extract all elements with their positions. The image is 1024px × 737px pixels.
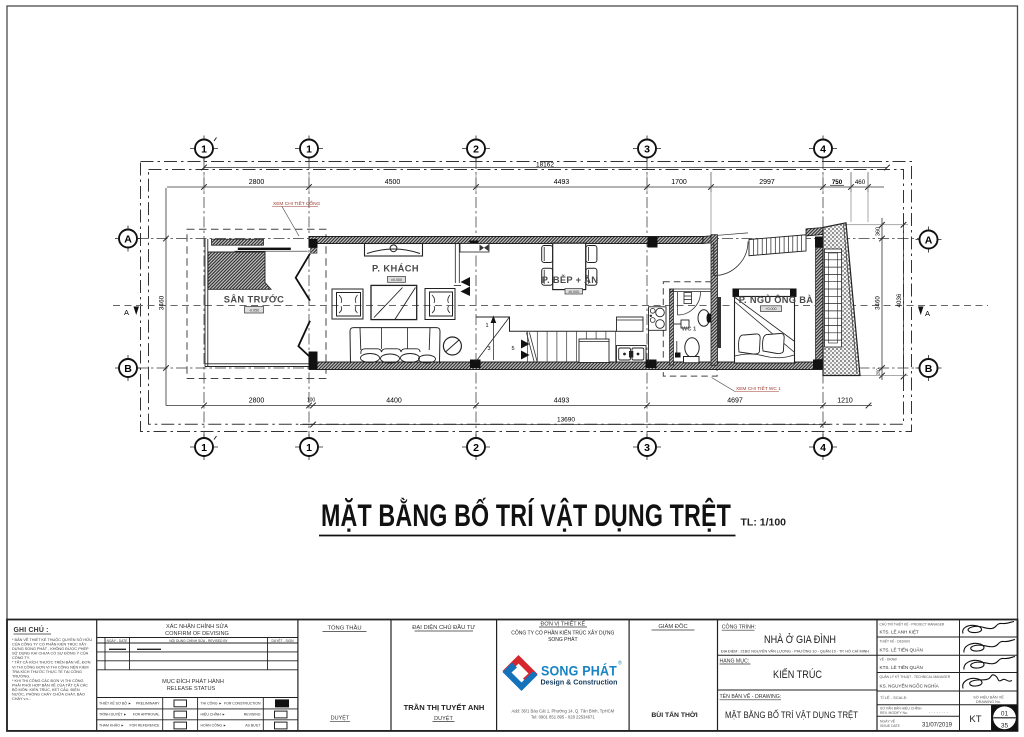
svg-text:HIỆU CHỈNH ►: HIỆU CHỈNH ► bbox=[201, 712, 226, 717]
svg-text:HOÀN CÔNG ►: HOÀN CÔNG ► bbox=[201, 723, 227, 728]
svg-text:+0.000: +0.000 bbox=[765, 307, 776, 311]
svg-text:VẼ - DRAW: VẼ - DRAW bbox=[880, 657, 898, 662]
svg-text:KTS. LÊ TIẾN QUÂN: KTS. LÊ TIẾN QUÂN bbox=[880, 646, 923, 653]
svg-text:SỬ DỤNG KHI CHƯA CÓ SỰ ĐỒNG Ý: SỬ DỤNG KHI CHƯA CÓ SỰ ĐỒNG Ý CỦA bbox=[12, 651, 89, 656]
svg-text:A: A bbox=[124, 308, 129, 317]
svg-text:CÔNG TY CỔ PHẦN KIẾN TRÚC XÂY: CÔNG TY CỔ PHẦN KIẾN TRÚC XÂY DỰNG bbox=[511, 630, 614, 637]
svg-text:4493: 4493 bbox=[554, 397, 570, 404]
svg-text:4036: 4036 bbox=[896, 293, 903, 307]
svg-text:3: 3 bbox=[487, 346, 490, 352]
svg-text:DRAWING No.: DRAWING No. bbox=[976, 700, 1001, 704]
svg-text:2800: 2800 bbox=[249, 397, 265, 404]
svg-text:TỈ LỆ - SCALE:: TỈ LỆ - SCALE: bbox=[880, 695, 907, 700]
svg-text:ĐƠN VỊ THIẾT KẾ: ĐƠN VỊ THIẾT KẾ bbox=[541, 620, 586, 627]
svg-text:B: B bbox=[925, 363, 933, 375]
svg-text:THIẾT KẾ - DESIGN: THIẾT KẾ - DESIGN bbox=[880, 639, 911, 644]
svg-text:WC 1: WC 1 bbox=[682, 327, 697, 333]
svg-text:SONG PHÁT: SONG PHÁT bbox=[541, 663, 617, 679]
svg-text:18162: 18162 bbox=[536, 161, 554, 168]
svg-text:PHẢI PHỐI HỢP BẢN VẼ CỦA TẤT C: PHẢI PHỐI HỢP BẢN VẼ CỦA TẤT CẢ CÁC bbox=[12, 683, 88, 688]
svg-text:01: 01 bbox=[1001, 710, 1009, 717]
svg-text:4: 4 bbox=[820, 143, 826, 155]
svg-text:4: 4 bbox=[820, 442, 826, 454]
svg-text:NỘI DUNG CHỈNH SỬA - REVISED B: NỘI DUNG CHỈNH SỬA - REVISED BY bbox=[169, 638, 228, 643]
svg-text:KTS. LÊ TIẾN QUÂN: KTS. LÊ TIẾN QUÂN bbox=[880, 663, 923, 670]
svg-text:THAM KHẢO ►: THAM KHẢO ► bbox=[99, 723, 124, 728]
svg-text:TRA KÍCH THƯỚC THỰC TẾ TẠI CÔN: TRA KÍCH THƯỚC THỰC TẾ TẠI CÔNG bbox=[12, 669, 82, 674]
svg-text:35: 35 bbox=[1001, 722, 1009, 729]
svg-text:Tel: 0901 851 895 - 028 225346: Tel: 0901 851 895 - 028 22534671 bbox=[531, 715, 595, 720]
svg-text:ĐỊA ĐIỂM : 21B/2 NGUYỄN VĂN L: ĐỊA ĐIỂM : 21B/2 NGUYỄN VĂN LƯỢNG - PHƯỜ… bbox=[721, 648, 869, 653]
svg-text:3: 3 bbox=[644, 143, 650, 155]
svg-text:DỰNG SONG PHÁT , KHÔNG ĐƯỢC PH: DỰNG SONG PHÁT , KHÔNG ĐƯỢC PHÉP bbox=[12, 646, 89, 651]
svg-text:MẶT BẰNG BỐ TRÍ VẬT DỤNG TRỆT: MẶT BẰNG BỐ TRÍ VẬT DỤNG TRỆT bbox=[725, 709, 858, 720]
svg-text:KT: KT bbox=[969, 714, 981, 725]
svg-text:ĐẠI DIỆN CHỦ ĐẦU TƯ: ĐẠI DIỆN CHỦ ĐẦU TƯ bbox=[412, 623, 475, 631]
svg-text:SỒ HIỆU BẢN VẼ: SỒ HIỆU BẢN VẼ bbox=[973, 694, 1004, 699]
svg-text:1: 1 bbox=[485, 323, 488, 329]
svg-text:CONFIRM OF DEVISING: CONFIRM OF DEVISING bbox=[165, 631, 229, 637]
svg-text:-0.050: -0.050 bbox=[249, 309, 259, 313]
svg-text:®: ® bbox=[618, 660, 622, 667]
svg-text:SỐ VĂN BẢN HIỆU CHỈNH: SỐ VĂN BẢN HIỆU CHỈNH bbox=[880, 706, 922, 711]
svg-text:P. KHÁCH: P. KHÁCH bbox=[372, 264, 419, 274]
svg-text:KTS. LÊ ANH KIỆT: KTS. LÊ ANH KIỆT bbox=[880, 628, 920, 635]
svg-text:THIẾT KẾ SƠ BỘ ►: THIẾT KẾ SƠ BỘ ► bbox=[99, 700, 131, 705]
svg-text:ISSUE DATE: ISSUE DATE bbox=[880, 724, 901, 728]
svg-text:2: 2 bbox=[473, 442, 479, 454]
svg-text:P. NGỦ ÔNG BÀ: P. NGỦ ÔNG BÀ bbox=[739, 294, 814, 305]
svg-text:3: 3 bbox=[644, 442, 650, 454]
svg-text:XEM CHI TIẾT WC 1: XEM CHI TIẾT WC 1 bbox=[736, 385, 781, 392]
svg-text:±0.000: ±0.000 bbox=[568, 290, 579, 294]
svg-text:KIẾN TRÚC: KIẾN TRÚC bbox=[773, 668, 822, 681]
svg-text:460: 460 bbox=[855, 179, 866, 186]
svg-text:200: 200 bbox=[876, 368, 881, 376]
svg-text:4500: 4500 bbox=[385, 179, 401, 186]
svg-text:DUYỆT: DUYỆT bbox=[331, 714, 350, 722]
svg-text:REVISING: REVISING bbox=[244, 713, 261, 717]
svg-text:CHỦ TRÌ THIẾT KẾ - PROJECT MAN: CHỦ TRÌ THIẾT KẾ - PROJECT MANAGER bbox=[880, 622, 945, 627]
svg-text:RELEASE STATUS: RELEASE STATUS bbox=[167, 686, 216, 692]
svg-text:NƯỚC, PHÒNG CHÁY CHỮA CHÁY, BÁ: NƯỚC, PHÒNG CHÁY CHỮA CHÁY, BÁO bbox=[12, 692, 85, 697]
svg-text:Design & Construction: Design & Construction bbox=[541, 678, 618, 687]
svg-text:CÔNG TY.: CÔNG TY. bbox=[12, 655, 30, 660]
svg-text:A: A bbox=[124, 233, 132, 245]
svg-text:XÁC NHẬN CHỈNH SỬA: XÁC NHẬN CHỈNH SỬA bbox=[166, 623, 228, 630]
svg-text:A: A bbox=[925, 234, 933, 246]
svg-text:TỔNG THẦU: TỔNG THẦU bbox=[327, 625, 361, 632]
svg-text:VỊ THI CÔNG ĐƠN VỊ THI CÔNG NÊ: VỊ THI CÔNG ĐƠN VỊ THI CÔNG NÊN KIỂM bbox=[12, 664, 89, 669]
svg-text:* TẤT CẢ KÍCH THƯỚC TRÊN BẢN V: * TẤT CẢ KÍCH THƯỚC TRÊN BẢN VẼ, ĐƠN bbox=[12, 660, 91, 665]
svg-text:31/07/2019: 31/07/2019 bbox=[922, 723, 953, 729]
svg-text:TRƯỜNG.: TRƯỜNG. bbox=[12, 673, 30, 678]
svg-text:4400: 4400 bbox=[386, 397, 402, 404]
svg-text:* KHI THI CÔNG CÁC ĐƠN VỊ THI: * KHI THI CÔNG CÁC ĐƠN VỊ THI CÔNG bbox=[12, 678, 84, 683]
svg-text:13690: 13690 bbox=[557, 417, 575, 424]
svg-text:360: 360 bbox=[876, 227, 882, 236]
svg-text:SONG PHÁT: SONG PHÁT bbox=[548, 636, 577, 643]
svg-text:4697: 4697 bbox=[727, 397, 743, 404]
svg-text:±0.000: ±0.000 bbox=[391, 278, 402, 282]
svg-text:FOR CONSTRUCTION: FOR CONSTRUCTION bbox=[224, 701, 261, 705]
svg-text:TÊN BẢN VẼ - DRAWING:: TÊN BẢN VẼ - DRAWING: bbox=[720, 692, 782, 700]
svg-text:1210: 1210 bbox=[837, 397, 853, 404]
svg-text:MẶT BẰNG BỐ TRÍ VẬT DỤNG TRỆT: MẶT BẰNG BỐ TRÍ VẬT DỤNG TRỆT bbox=[321, 497, 731, 533]
svg-text:100: 100 bbox=[307, 398, 316, 404]
svg-text:1700: 1700 bbox=[671, 179, 687, 186]
svg-text:DUYỆT: DUYỆT bbox=[434, 714, 453, 722]
svg-text:3460: 3460 bbox=[875, 296, 882, 310]
svg-text:3460: 3460 bbox=[159, 295, 166, 310]
svg-text:MỤC ĐÍCH PHÁT HÀNH: MỤC ĐÍCH PHÁT HÀNH bbox=[162, 678, 224, 685]
svg-text:HẠNG MỤC:: HẠNG MỤC: bbox=[720, 658, 750, 664]
svg-text:NGÀY VẼ: NGÀY VẼ bbox=[880, 718, 896, 723]
svg-text:FOR APPROVAL: FOR APPROVAL bbox=[133, 713, 160, 717]
svg-text:2: 2 bbox=[473, 143, 479, 155]
svg-text:THI CÔNG ►: THI CÔNG ► bbox=[201, 700, 223, 705]
svg-text:DUYỆT - SIGN: DUYỆT - SIGN bbox=[271, 638, 294, 643]
svg-text:* BẢN VẼ THIẾT KẾ THUỘC QUYỀN: * BẢN VẼ THIẾT KẾ THUỘC QUYỀN SỞ HỮU bbox=[12, 637, 92, 642]
svg-text:B: B bbox=[124, 363, 132, 375]
svg-text:GIÁM ĐỒC: GIÁM ĐỒC bbox=[658, 623, 687, 630]
svg-text:QUẢN LÝ KỸ THUẬT - TECHNICAL M: QUẢN LÝ KỸ THUẬT - TECHNICAL MANAGER bbox=[880, 674, 951, 679]
svg-text:2997: 2997 bbox=[759, 179, 775, 186]
svg-text:GHI CHÚ :: GHI CHÚ : bbox=[14, 625, 49, 634]
svg-text:TRÌNH DUYỆT ►: TRÌNH DUYỆT ► bbox=[99, 712, 127, 717]
svg-text:KS. NGUYỄN NGỐC NGHĨA: KS. NGUYỄN NGỐC NGHĨA bbox=[880, 683, 940, 689]
svg-text:1: 1 bbox=[306, 442, 312, 454]
svg-text:XEM CHI TIẾT CỔNG: XEM CHI TIẾT CỔNG bbox=[273, 200, 321, 207]
svg-text:SÂN TRƯỚC: SÂN TRƯỚC bbox=[224, 294, 285, 305]
svg-text:A: A bbox=[925, 309, 930, 318]
svg-text:4493: 4493 bbox=[554, 179, 570, 186]
svg-text:REV. MODIFY No.: REV. MODIFY No. bbox=[880, 711, 908, 715]
svg-text:FOR REFERENCE: FOR REFERENCE bbox=[130, 724, 161, 728]
svg-text:1: 1 bbox=[306, 143, 312, 155]
svg-text:1: 1 bbox=[201, 442, 207, 454]
svg-text:TRẦN THỊ TUYẾT ANH: TRẦN THỊ TUYẾT ANH bbox=[404, 702, 485, 712]
svg-text:1: 1 bbox=[201, 143, 207, 155]
svg-text:PRELIMINARY: PRELIMINARY bbox=[136, 701, 160, 705]
svg-text:Add: 36/1 Bàu Cát 1, Phường 14: Add: 36/1 Bàu Cát 1, Phường 14, Q. Tân B… bbox=[511, 709, 614, 714]
svg-text:. . . . . . . .: . . . . . . . . bbox=[929, 709, 948, 714]
svg-text:NGÀY - DATE: NGÀY - DATE bbox=[107, 639, 129, 643]
svg-text:5: 5 bbox=[511, 346, 514, 352]
svg-text:P. BỄP + ĂN: P. BỄP + ĂN bbox=[542, 274, 598, 285]
svg-text:CÔNG TRÌNH:: CÔNG TRÌNH: bbox=[722, 624, 756, 631]
svg-text:BỘ MÔN: KIẾN TRÚC, KẾT CẤU, ĐI: BỘ MÔN: KIẾN TRÚC, KẾT CẤU, ĐIỆN bbox=[12, 687, 80, 692]
svg-text:2800: 2800 bbox=[249, 179, 265, 186]
svg-text:TL: 1/100: TL: 1/100 bbox=[741, 517, 787, 529]
svg-text:CỦA CÔNG TY CỔ PHẦN KIẾN TRÚC: CỦA CÔNG TY CỔ PHẦN KIẾN TRÚC XÂY bbox=[12, 642, 87, 647]
svg-text:AS BUILT: AS BUILT bbox=[245, 724, 261, 728]
svg-text:CHÁY v.v...: CHÁY v.v... bbox=[12, 697, 31, 701]
svg-text:NHÀ Ở GIA ĐÌNH: NHÀ Ở GIA ĐÌNH bbox=[764, 633, 836, 646]
